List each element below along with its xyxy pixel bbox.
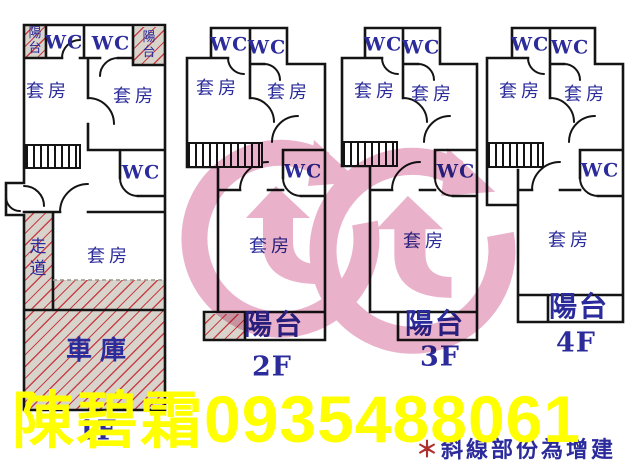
room-label-balcony-top-left-1f: 陽台	[28, 26, 43, 56]
room-label-suite-right-2f: 套房	[267, 84, 311, 102]
room-label-suite-right-1f: 套房	[113, 88, 157, 106]
room-label-wc-mid-2f: WC	[284, 163, 322, 182]
room-label-suite-bottom-4f: 套房	[548, 232, 592, 250]
room-label-wc-top-left-3f: WC	[364, 36, 402, 55]
walls-2f	[187, 28, 325, 340]
room-label-suite-left-3f: 套房	[354, 83, 398, 101]
floor-label-4f: 4F	[556, 330, 596, 357]
room-label-wc-top-right-1f: WC	[92, 35, 130, 54]
room-label-garage-1f: 車庫	[66, 338, 134, 364]
room-label-wc-top-right-4f: WC	[551, 39, 589, 58]
floor-label-3f: 3F	[420, 344, 460, 371]
room-label-suite-left-1f: 套房	[26, 83, 70, 101]
room-label-wc-top-left-2f: WC	[210, 36, 248, 55]
room-label-suite-bottom-1f: 套房	[87, 248, 131, 266]
agent-name: 陳碧霜	[12, 384, 204, 457]
room-label-wc-top-left-4f: WC	[511, 36, 549, 55]
room-label-suite-right-3f: 套房	[411, 86, 455, 104]
floor-label-2f: 2F	[252, 354, 292, 381]
room-label-wc-mid-3f: WC	[437, 163, 475, 182]
room-label-corridor-1f: 走道	[29, 236, 47, 280]
room-label-balcony-top-right-1f: 陽台	[142, 30, 157, 60]
room-label-suite-left-4f: 套房	[499, 83, 543, 101]
room-label-balcony-4f: 陽台	[549, 293, 609, 321]
room-label-wc-top-left-1f: WC	[45, 34, 83, 53]
stairs-2f	[186, 142, 263, 168]
room-label-balcony-2f: 陽台	[244, 311, 304, 339]
door-arcs-1f	[6, 40, 138, 212]
room-label-suite-bottom-3f: 套房	[403, 233, 447, 251]
room-label-suite-left-2f: 套房	[196, 80, 240, 98]
room-label-wc-mid-4f: WC	[581, 162, 619, 181]
room-label-wc-mid-1f: WC	[122, 164, 160, 183]
stairs-1f	[24, 144, 81, 169]
floorplan-sheet: 陽台 WC WC 陽台 套房 套房 WC 走道 套房 車庫 1F WC WC 套…	[0, 0, 640, 475]
stairs-3f	[341, 141, 398, 167]
agent-contact-overlay: 陳碧霜0935488061	[12, 386, 581, 452]
agent-phone: 0935488061	[204, 382, 581, 456]
room-label-balcony-3f: 陽台	[405, 310, 465, 338]
room-label-wc-top-right-2f: WC	[248, 39, 286, 58]
walls-3f	[342, 28, 477, 340]
room-label-suite-right-4f: 套房	[564, 86, 608, 104]
room-label-wc-top-right-3f: WC	[402, 39, 440, 58]
room-label-suite-bottom-2f: 套房	[249, 238, 293, 256]
stairs-4f	[486, 142, 544, 168]
